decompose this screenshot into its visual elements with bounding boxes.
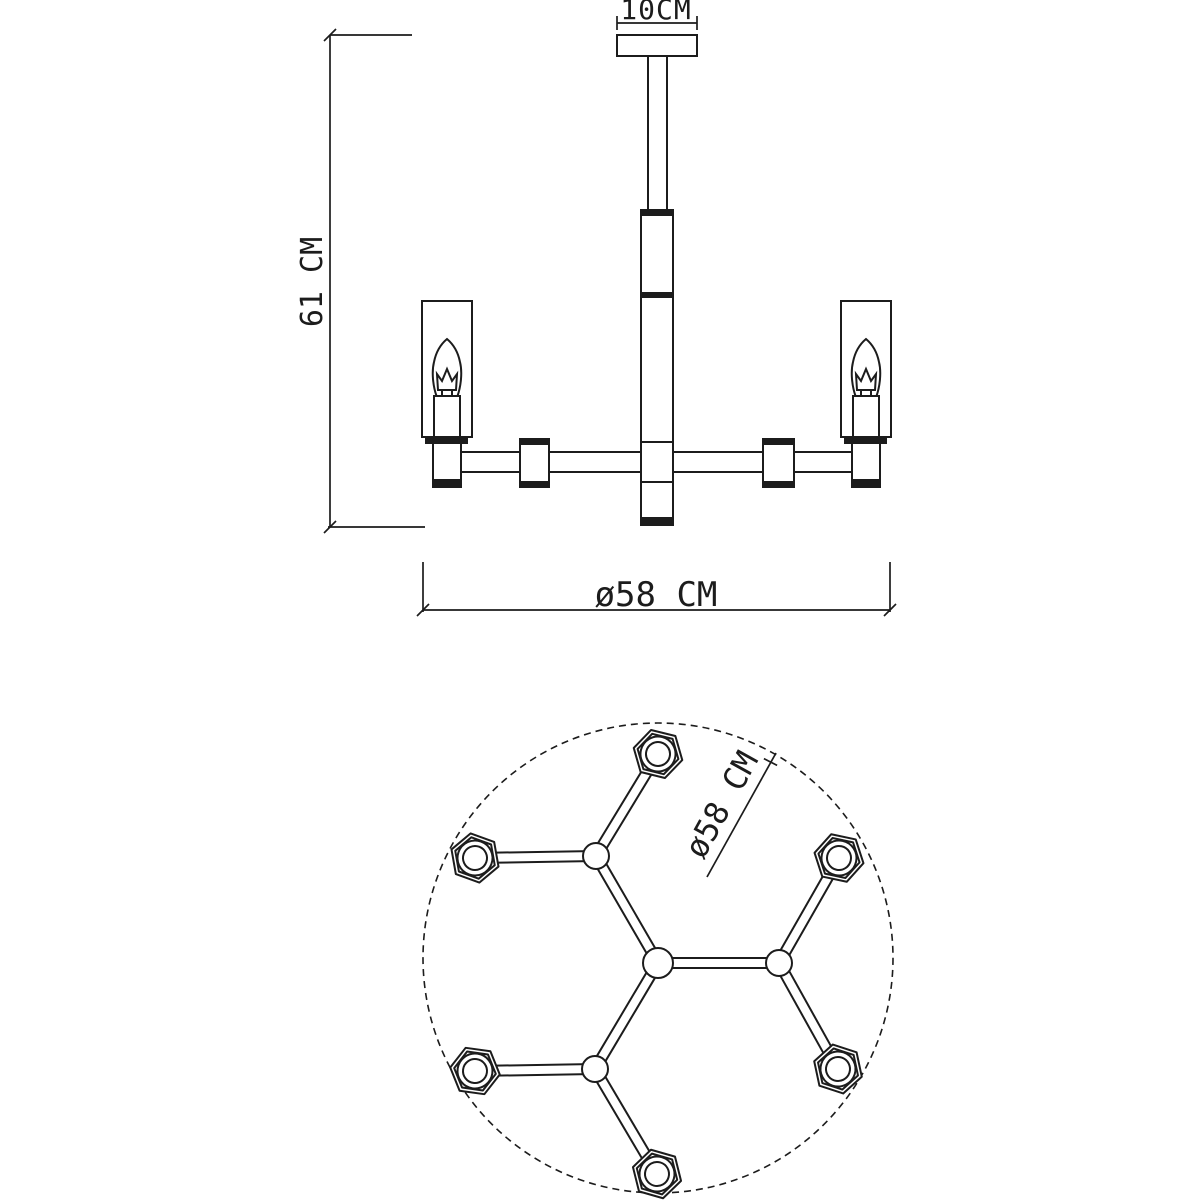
candle-sleeve <box>434 396 460 437</box>
connector-body <box>763 439 794 487</box>
arm-pipe-inner <box>595 963 658 1069</box>
candle-left <box>422 301 472 487</box>
candle-sleeve <box>853 396 879 437</box>
side-elevation-view: 10CM 61 CM ø58 CM <box>295 0 896 616</box>
socket-lower-left <box>447 1046 503 1096</box>
technical-drawing-canvas: 10CM 61 CM ø58 CM <box>0 0 1200 1200</box>
connector-bottom-band <box>519 481 550 487</box>
socket-stem-band <box>851 479 881 487</box>
socket-lower-right <box>808 1041 869 1098</box>
column-bottom-band <box>640 517 674 525</box>
center-column <box>640 209 674 525</box>
center-hub <box>643 948 673 978</box>
canopy-width-dimension-label: 10CM <box>620 0 691 26</box>
canopy-width-dimension: 10CM <box>617 0 697 30</box>
chandelier-dimension-drawing: 10CM 61 CM ø58 CM <box>0 0 1200 1200</box>
arm-pipe-inner <box>596 856 658 963</box>
socket-stem-band <box>432 479 462 487</box>
ceiling-canopy <box>617 35 697 56</box>
plan-diameter-dimension: ø58 CM <box>677 745 777 877</box>
socket-top <box>629 727 688 781</box>
right-hub <box>766 950 792 976</box>
column-mid-band <box>640 292 674 298</box>
height-dimension: 61 CM <box>295 29 425 533</box>
height-dimension-label: 61 CM <box>295 237 330 327</box>
connector-top-band <box>762 439 795 445</box>
upper-left-hub <box>583 843 609 869</box>
diameter-dimension: ø58 CM <box>417 562 896 616</box>
lower-left-hub <box>582 1056 608 1082</box>
socket-upper-left <box>444 829 506 887</box>
hanging-rod <box>648 56 667 211</box>
column-top-band <box>640 209 674 216</box>
arm-connector-right <box>762 439 795 487</box>
connector-top-band <box>519 439 550 445</box>
socket-upper-right <box>810 832 868 885</box>
shade-ring <box>844 437 887 444</box>
arm-connector-left <box>519 439 550 487</box>
connector-bottom-band <box>762 481 795 487</box>
connector-body <box>520 439 549 487</box>
top-plan-view: ø58 CM <box>423 723 893 1200</box>
column-tube <box>641 210 673 525</box>
candle-right <box>841 301 891 487</box>
plan-diameter-dimension-label: ø58 CM <box>677 745 766 865</box>
diameter-dimension-label: ø58 CM <box>595 575 718 615</box>
shade-ring <box>425 437 468 444</box>
